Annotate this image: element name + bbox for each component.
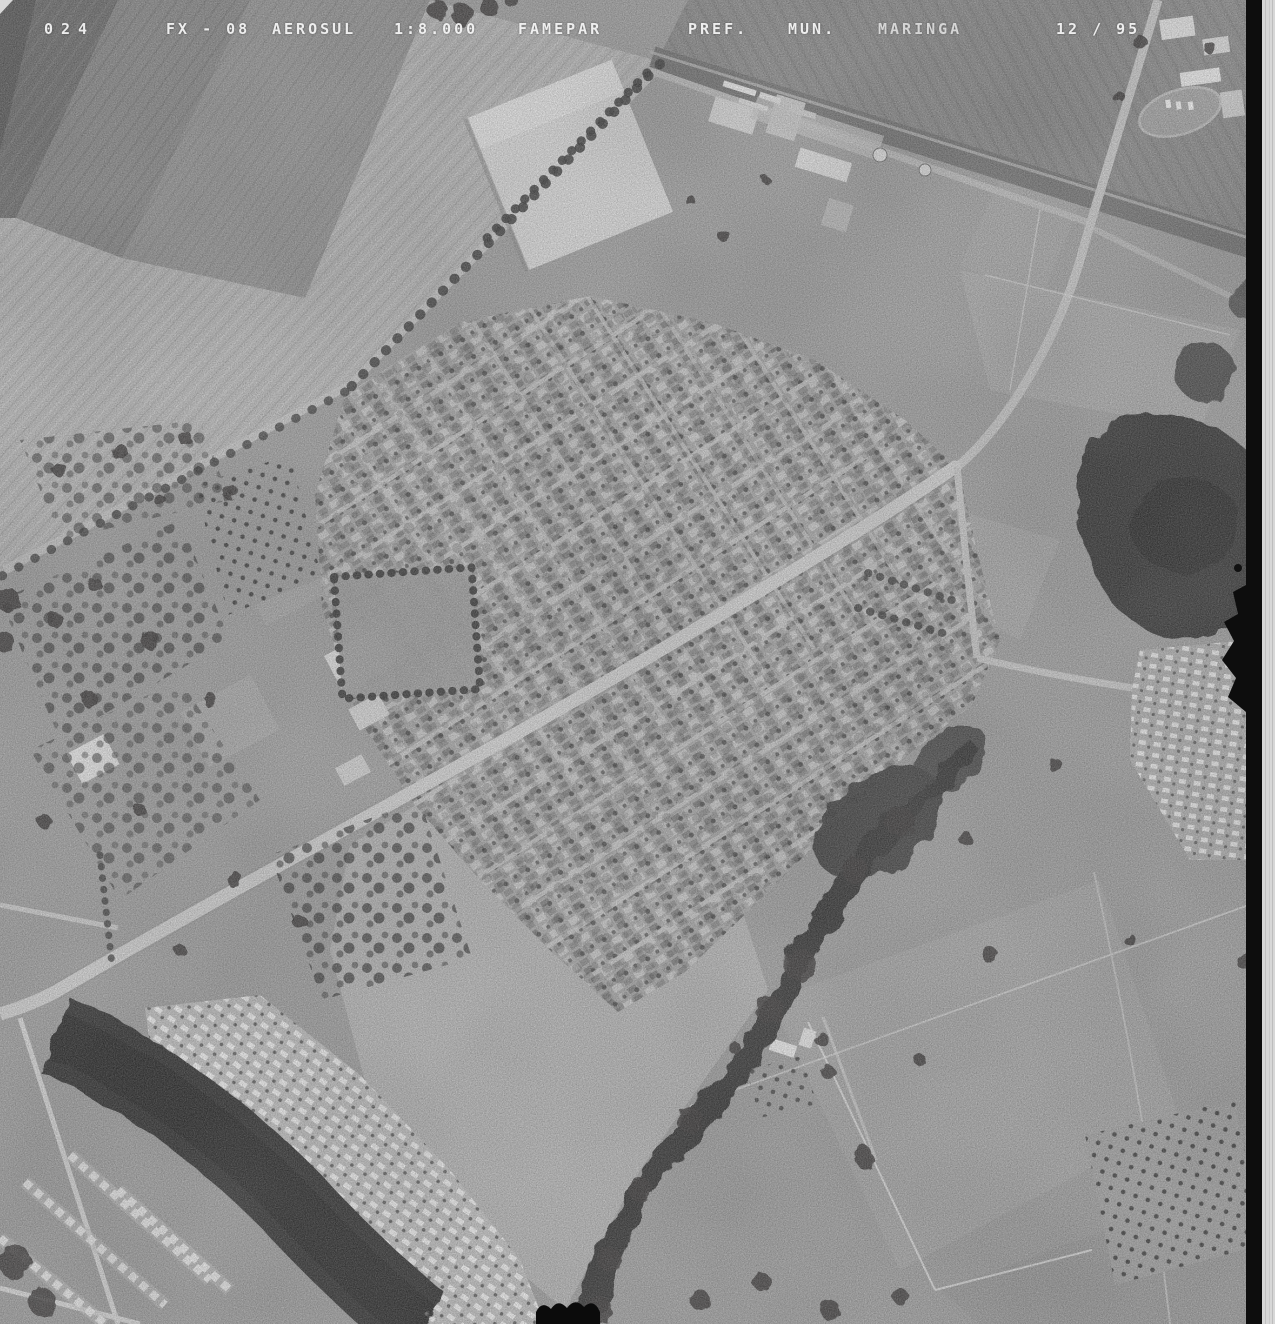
survey-company-label: AEROSUL	[272, 20, 356, 38]
photo-scale-label: 1:8.000	[394, 20, 478, 38]
aerial-photo-canvas	[0, 0, 1275, 1324]
film-edge-strip	[1246, 0, 1262, 1324]
client-municipality-label: MUN.	[788, 20, 836, 38]
agency-label: FAMEPAR	[518, 20, 602, 38]
photo-date-label: 12 / 95	[1056, 20, 1140, 38]
client-prefix-label: PREF.	[688, 20, 748, 38]
city-name-label: MARINGA	[878, 20, 962, 38]
aerial-photo: 024 FX - 08 AEROSUL 1:8.000 FAMEPAR PREF…	[0, 0, 1275, 1324]
film-margin	[1262, 0, 1275, 1324]
photo-grain-overlay	[0, 0, 1275, 1324]
flight-line-label: FX - 08	[166, 20, 250, 38]
photo-number-label: 024	[44, 20, 95, 38]
